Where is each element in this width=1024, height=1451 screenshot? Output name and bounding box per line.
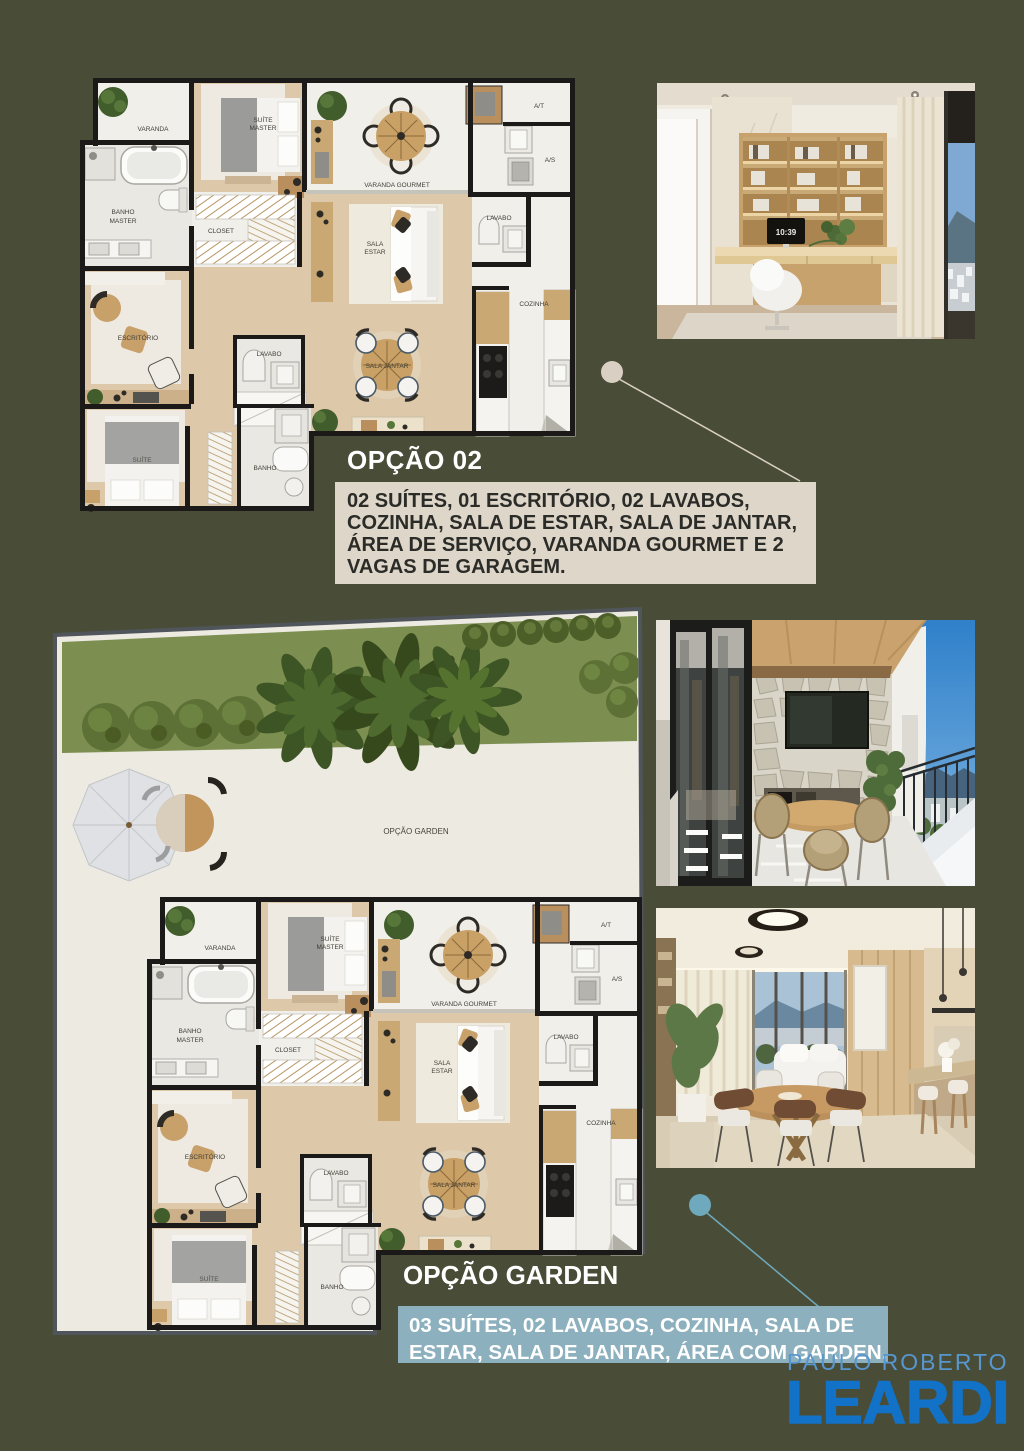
svg-text:OPÇÃO GARDEN: OPÇÃO GARDEN: [383, 827, 449, 836]
svg-text:10:39: 10:39: [776, 228, 797, 237]
